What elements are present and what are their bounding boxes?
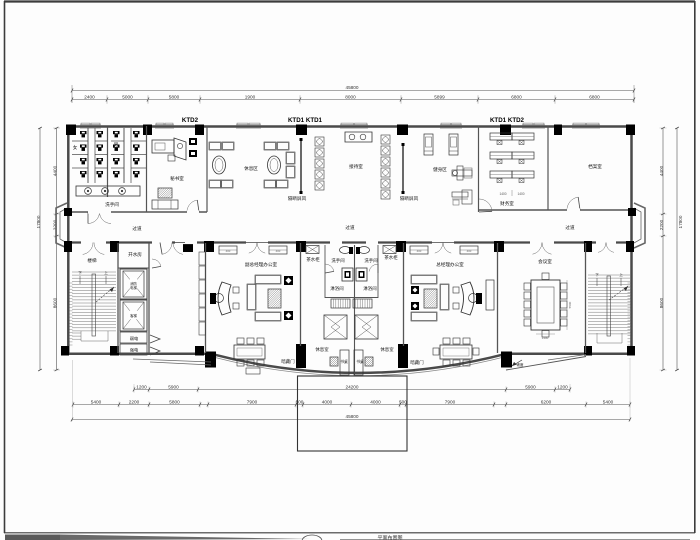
- svg-text:强电: 强电: [130, 347, 139, 354]
- svg-text:休息室: 休息室: [315, 346, 329, 353]
- svg-text:下: 下: [78, 271, 82, 275]
- svg-text:1200: 1200: [557, 384, 568, 389]
- svg-text:5900: 5900: [168, 384, 179, 389]
- svg-text:过道: 过道: [345, 224, 355, 231]
- svg-text:洗手间: 洗手间: [105, 201, 119, 208]
- svg-text:接待室: 接待室: [349, 163, 363, 170]
- svg-text:4000: 4000: [370, 399, 381, 404]
- svg-text:平面布置图: 平面布置图: [377, 535, 402, 540]
- svg-text:客梯: 客梯: [130, 313, 137, 318]
- svg-text:弱电: 弱电: [130, 335, 139, 342]
- svg-text:400: 400: [467, 249, 472, 253]
- svg-text:1400: 1400: [517, 192, 524, 196]
- svg-text:坡度: 坡度: [517, 362, 524, 367]
- svg-text:洗手间: 洗手间: [331, 257, 344, 264]
- svg-text:4400: 4400: [53, 165, 58, 176]
- svg-text:会议室: 会议室: [538, 258, 552, 265]
- svg-text:8600: 8600: [659, 297, 664, 308]
- svg-text:5500: 5500: [568, 301, 572, 308]
- svg-text:开水房: 开水房: [128, 251, 142, 258]
- svg-text:45800: 45800: [345, 85, 358, 90]
- svg-text:2200: 2200: [659, 219, 664, 230]
- svg-text:淋浴间: 淋浴间: [330, 285, 343, 292]
- svg-text:5400: 5400: [91, 399, 102, 404]
- svg-text:休息室: 休息室: [380, 346, 394, 353]
- svg-text:24200: 24200: [345, 384, 358, 389]
- svg-text:8000: 8000: [345, 94, 356, 99]
- svg-text:过道: 过道: [132, 225, 142, 232]
- svg-text:400: 400: [276, 249, 281, 253]
- svg-text:暗藏门: 暗藏门: [281, 358, 294, 365]
- svg-text:淋浴间: 淋浴间: [363, 285, 376, 292]
- svg-text:1400: 1400: [542, 336, 549, 340]
- svg-text:KTD1 KTD2: KTD1 KTD2: [490, 117, 525, 124]
- svg-text:6800: 6800: [589, 94, 600, 99]
- svg-text:上: 上: [104, 270, 108, 275]
- svg-text:45800: 45800: [345, 414, 358, 419]
- svg-text:7900: 7900: [247, 399, 258, 404]
- svg-text:1400: 1400: [499, 192, 506, 196]
- svg-text:书桌: 书桌: [356, 359, 364, 364]
- svg-text:秘书室: 秘书室: [170, 175, 184, 182]
- svg-text:5000: 5000: [122, 94, 133, 99]
- svg-text:4400: 4400: [659, 165, 664, 176]
- svg-text:1200: 1200: [136, 384, 147, 389]
- svg-text:2400: 2400: [84, 94, 95, 99]
- svg-text:茶水柜: 茶水柜: [384, 254, 398, 261]
- svg-text:5900: 5900: [525, 384, 536, 389]
- svg-text:1900: 1900: [245, 94, 256, 99]
- svg-text:休息区: 休息区: [244, 165, 258, 172]
- svg-text:书桌: 书桌: [340, 359, 348, 364]
- svg-text:过道: 过道: [565, 224, 575, 231]
- svg-text:500: 500: [296, 399, 304, 404]
- svg-text:健身区: 健身区: [433, 166, 447, 173]
- svg-text:17800: 17800: [678, 215, 683, 228]
- svg-text:KTD2: KTD2: [182, 117, 199, 124]
- svg-text:400: 400: [226, 249, 231, 253]
- svg-text:上: 上: [619, 272, 623, 277]
- svg-text:总经理办公室: 总经理办公室: [436, 261, 464, 268]
- svg-text:4000: 4000: [322, 399, 333, 404]
- svg-text:下: 下: [595, 273, 599, 277]
- svg-text:财务室: 财务室: [500, 200, 514, 207]
- svg-text:5899: 5899: [434, 94, 445, 99]
- svg-text:17800: 17800: [36, 215, 41, 228]
- svg-text:5800: 5800: [169, 94, 180, 99]
- svg-text:7900: 7900: [445, 399, 456, 404]
- svg-text:5400: 5400: [603, 399, 614, 404]
- svg-text:5800: 5800: [169, 399, 180, 404]
- svg-text:暗藏门: 暗藏门: [410, 359, 423, 366]
- svg-text:8600: 8600: [53, 297, 58, 308]
- svg-text:茶水柜: 茶水柜: [306, 256, 320, 263]
- svg-text:隔断屏风: 隔断屏风: [288, 195, 307, 202]
- svg-text:女: 女: [73, 144, 78, 151]
- svg-text:6800: 6800: [511, 94, 522, 99]
- svg-text:电梯: 电梯: [130, 285, 137, 290]
- svg-text:6200: 6200: [541, 399, 552, 404]
- svg-text:洗手间: 洗手间: [364, 257, 377, 264]
- svg-text:楼梯: 楼梯: [87, 257, 97, 264]
- svg-text:500: 500: [399, 399, 407, 404]
- svg-text:隔断屏风: 隔断屏风: [400, 195, 419, 202]
- svg-text:副总经理办公室: 副总经理办公室: [245, 261, 278, 268]
- svg-text:2200: 2200: [129, 399, 140, 404]
- svg-text:400: 400: [417, 249, 422, 253]
- svg-text:档案室: 档案室: [588, 163, 602, 170]
- svg-text:KTD1 KTD1: KTD1 KTD1: [288, 117, 323, 124]
